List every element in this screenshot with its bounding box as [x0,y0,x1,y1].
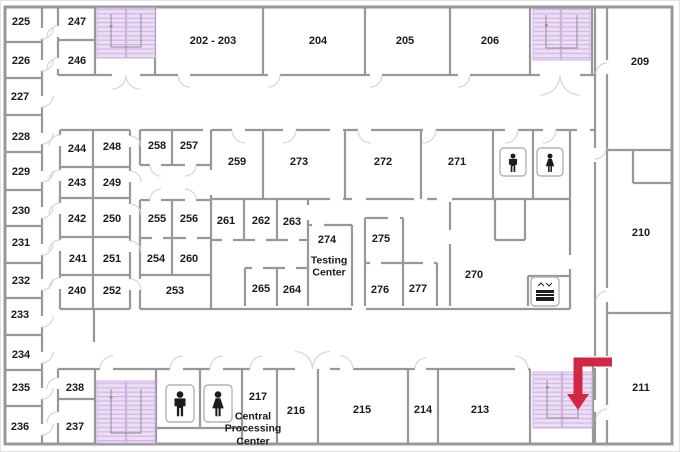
room-label-228: 228 [12,131,30,143]
room-label-260: 260 [180,253,198,265]
door-swing-arcs [42,26,607,435]
stairwell-top-right [533,9,590,60]
room-label-265: 265 [252,283,270,295]
room-label-254: 254 [147,253,165,265]
room-label-204: 204 [309,35,327,47]
room-label-271: 271 [448,156,466,168]
room-label-238: 238 [66,382,84,394]
room-label-244: 244 [68,143,86,155]
room-label-211: 211 [632,382,650,394]
room-label-202-203: 202 - 203 [190,35,236,47]
room-label-270: 270 [465,269,483,281]
room-label-275: 275 [372,233,390,245]
room-label-240: 240 [68,285,86,297]
room-label-237: 237 [66,421,84,433]
room-label-272: 272 [374,156,392,168]
room-label-214: 214 [414,404,432,416]
room-label-210: 210 [632,227,650,239]
room-label-243: 243 [68,177,86,189]
room-label-235: 235 [12,382,30,394]
room-label-231: 231 [12,237,30,249]
room-label-257: 257 [180,140,198,152]
room-label-216: 216 [287,405,305,417]
room-label-233: 233 [11,309,29,321]
mens-restroom-icon-lower [166,385,194,422]
room-label-236: 236 [11,421,29,433]
room-label-217: 217 [249,391,267,403]
room-label-249: 249 [103,177,121,189]
room-label-251: 251 [103,253,121,265]
floor-plan-drawing [0,0,680,452]
central-processing-center-label: Central Processing Center [218,410,288,447]
room-label-234: 234 [12,349,30,361]
room-label-255: 255 [148,213,166,225]
stairwell-bottom-left [97,381,155,443]
room-label-206: 206 [481,35,499,47]
room-label-277: 277 [409,283,427,295]
room-label-276: 276 [371,284,389,296]
room-label-262: 262 [252,215,270,227]
room-label-225: 225 [12,16,30,28]
room-label-213: 213 [471,404,489,416]
room-label-247: 247 [68,16,86,28]
room-label-229: 229 [12,166,30,178]
stairwell-top-left [97,8,155,58]
room-label-264: 264 [283,284,301,296]
room-label-256: 256 [180,213,198,225]
room-label-230: 230 [12,205,30,217]
room-label-259: 259 [228,156,246,168]
room-label-209: 209 [631,56,649,68]
room-label-242: 242 [68,213,86,225]
room-label-232: 232 [12,275,30,287]
room-label-227: 227 [11,91,29,103]
room-label-263: 263 [283,216,301,228]
room-label-274: 274 [318,234,336,246]
room-label-226: 226 [12,55,30,67]
room-label-273: 273 [290,156,308,168]
room-label-241: 241 [69,253,87,265]
womens-restroom-icon-upper [537,148,563,176]
floor-plan: 225 226 227 228 229 230 231 232 233 234 … [0,0,680,452]
room-label-246: 246 [68,55,86,67]
room-label-253: 253 [166,285,184,297]
room-label-248: 248 [103,141,121,153]
room-label-205: 205 [396,35,414,47]
room-label-258: 258 [148,140,166,152]
room-label-261: 261 [217,215,235,227]
room-label-215: 215 [353,404,371,416]
room-label-252: 252 [103,285,121,297]
mens-restroom-icon-upper [500,148,526,176]
elevator-icon [531,277,559,306]
testing-center-label: Testing Center [303,255,355,280]
room-label-250: 250 [103,213,121,225]
